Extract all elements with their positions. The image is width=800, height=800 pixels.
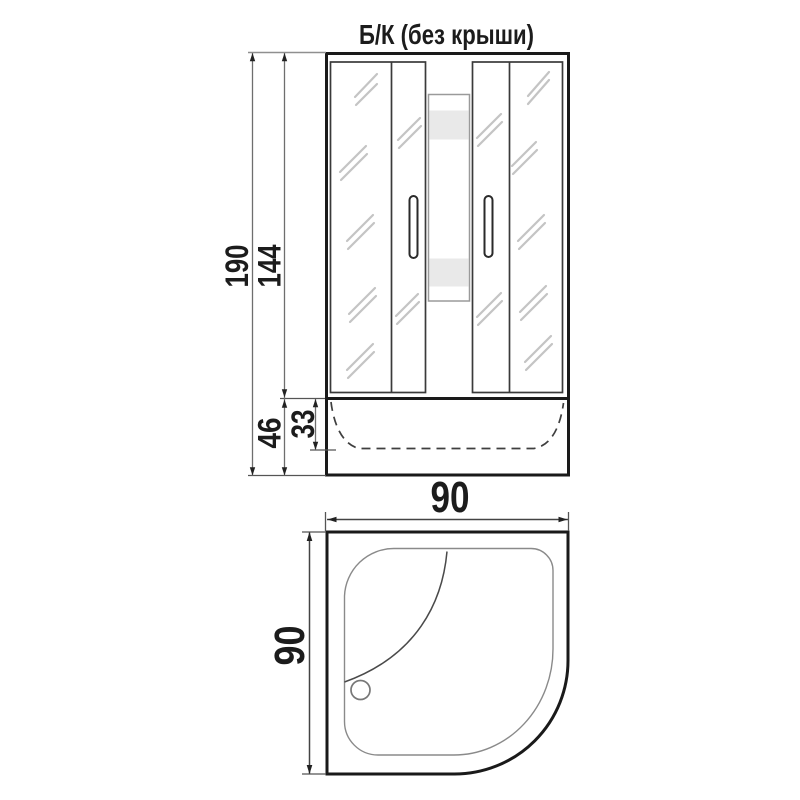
svg-text:90: 90 xyxy=(431,473,470,522)
svg-text:33: 33 xyxy=(285,410,321,439)
svg-text:Б/К (без крыши): Б/К (без крыши) xyxy=(359,19,534,50)
svg-text:90: 90 xyxy=(266,626,314,666)
svg-text:190: 190 xyxy=(219,245,255,288)
svg-text:144: 144 xyxy=(252,244,288,287)
svg-text:46: 46 xyxy=(252,418,288,449)
